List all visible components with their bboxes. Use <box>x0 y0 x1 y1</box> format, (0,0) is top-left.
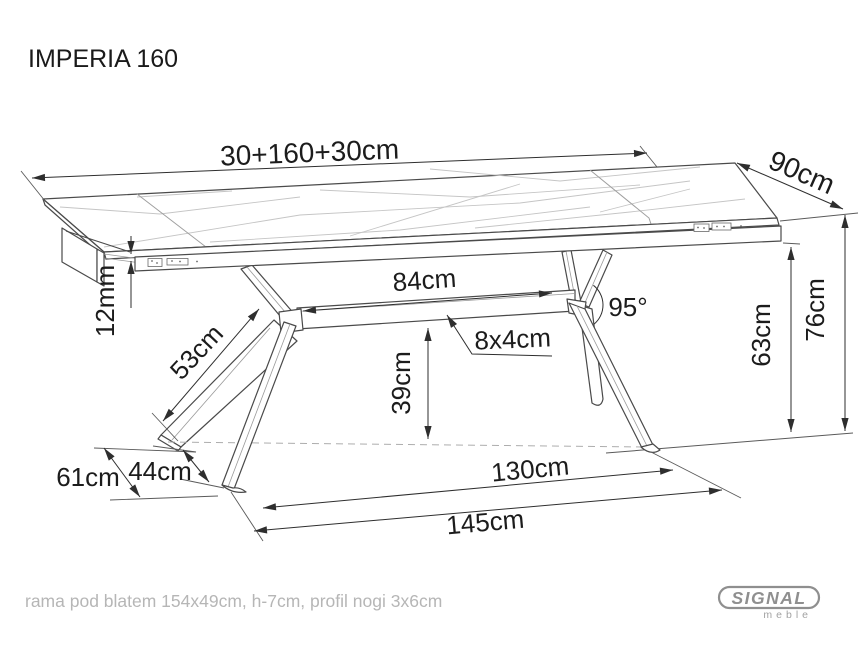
logo-brand-text: SIGNAL <box>731 588 806 608</box>
dim-thickness-label: 12mm <box>90 265 120 337</box>
dim-feet-span-inner-label: 130cm <box>490 450 570 487</box>
signal-logo: SIGNAL meble <box>719 587 819 621</box>
dim-feet-depth-outer-label: 61cm <box>56 462 120 492</box>
dim-feet-span-outer-label: 145cm <box>445 504 525 541</box>
dim-table-height-label: 76cm <box>800 278 830 342</box>
dim-top-depth-label: 90cm <box>764 144 839 200</box>
right-leg-front-strut <box>569 303 660 452</box>
dim-crossbar-label: 84cm <box>392 263 458 297</box>
page-title: IMPERIA 160 <box>28 45 178 73</box>
diagram-page: 30+160+30cm 90cm 12mm 53cm 84cm 8x4cm 95… <box>0 0 860 658</box>
dim-profile-label: 8x4cm <box>474 322 552 355</box>
dim-angle-label: 95° <box>608 292 647 322</box>
dim-frame-clearance-label: 63cm <box>746 303 776 367</box>
dim-feet-span-inner-line <box>263 470 673 508</box>
footer-note: rama pod blatem 154x49cm, h-7cm, profil … <box>25 591 442 611</box>
dim-top-length-label: 30+160+30cm <box>220 133 400 171</box>
logo-sub-text: meble <box>763 609 812 621</box>
dim-crossbar-height-label: 39cm <box>386 351 416 415</box>
table-technical-drawing: 30+160+30cm 90cm 12mm 53cm 84cm 8x4cm 95… <box>0 0 860 658</box>
dim-feet-depth-inner-label: 44cm <box>128 456 192 486</box>
